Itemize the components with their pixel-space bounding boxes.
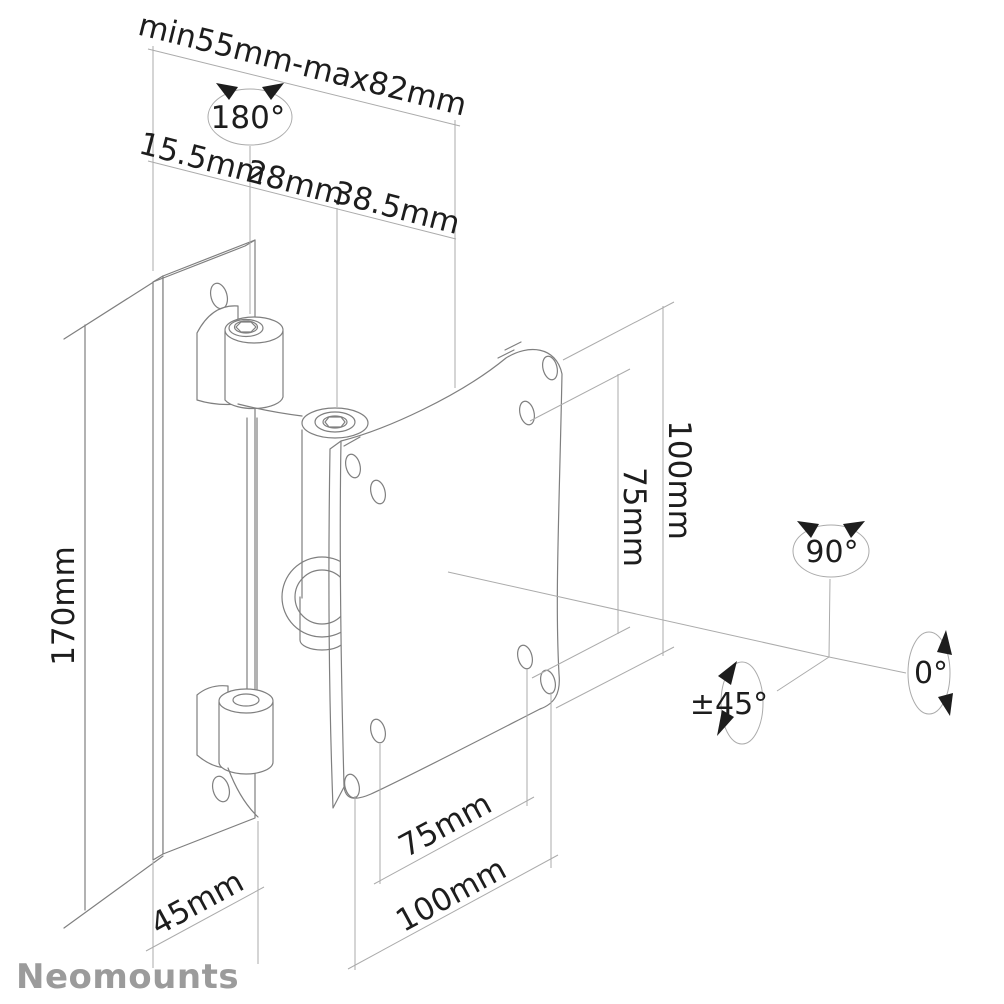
swivel-indicator: 180° xyxy=(208,83,292,145)
vesa-vertical-outer-label: 100mm xyxy=(661,420,697,540)
wall-mount-diagram: min55mm-max82mm 180° 15.5mm 28mm 38.5mm … xyxy=(0,0,1004,1004)
swivel-label: 180° xyxy=(211,100,286,136)
wall-plate-side xyxy=(153,276,163,860)
dim-bracket-height: 170mm xyxy=(46,546,82,666)
hinge-top-knuckle xyxy=(197,306,283,409)
wall-top-edge xyxy=(64,276,163,339)
technical-drawing-page: min55mm-max82mm 180° 15.5mm 28mm 38.5mm … xyxy=(0,0,1004,1004)
rotation-arrow-icon xyxy=(937,630,952,655)
depth-range-label: min55mm-max82mm xyxy=(135,7,471,123)
bracket-height-label: 170mm xyxy=(46,546,82,666)
rotation-top-label: 90° xyxy=(805,535,858,570)
rotation-left-label: ±45° xyxy=(690,687,768,722)
rotation-arrow-icon xyxy=(718,661,737,685)
vesa-vertical-inner-label: 75mm xyxy=(616,467,652,567)
wallplate-width-label: 45mm xyxy=(145,864,250,943)
brand-logo: Neomounts xyxy=(16,957,239,997)
vesa-horizontal-outer-label: 100mm xyxy=(390,851,512,940)
rotation-arrow-icon xyxy=(938,693,953,716)
dim-100-vertical xyxy=(556,302,674,708)
vesa-plate-face xyxy=(340,350,562,799)
depth-segment-3-label: 38.5mm xyxy=(329,175,463,242)
lower-cylinder-top xyxy=(219,689,273,713)
rotation-right-label: 0° xyxy=(914,656,948,691)
axis-lines xyxy=(777,579,906,691)
vesa-horizontal-inner-label: 75mm xyxy=(393,786,498,865)
